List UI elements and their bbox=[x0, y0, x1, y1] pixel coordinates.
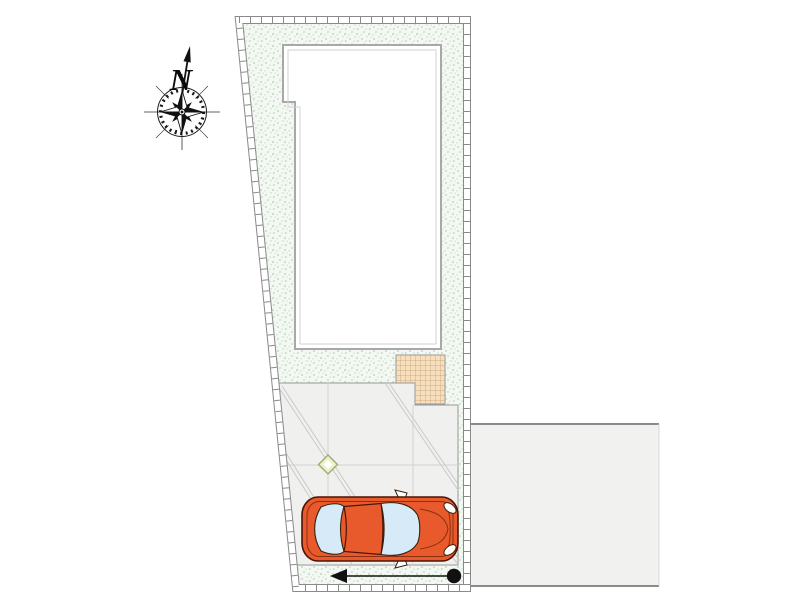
site-plan-page: N bbox=[0, 0, 800, 600]
building-footprint bbox=[283, 45, 441, 349]
neighbor-lot-area bbox=[469, 424, 659, 586]
car-windshield bbox=[381, 503, 420, 556]
compass: N bbox=[144, 46, 220, 150]
neighbor-lot bbox=[468, 424, 659, 586]
car-roof bbox=[344, 504, 383, 555]
building-outer-wall bbox=[283, 45, 441, 349]
north-label: N bbox=[169, 62, 194, 97]
car-top-view bbox=[302, 490, 458, 568]
entry-point-dot bbox=[447, 569, 461, 583]
car-rear-window bbox=[315, 504, 344, 555]
north-arrow-head bbox=[184, 46, 191, 63]
site-plan-drawing: N bbox=[0, 0, 800, 600]
